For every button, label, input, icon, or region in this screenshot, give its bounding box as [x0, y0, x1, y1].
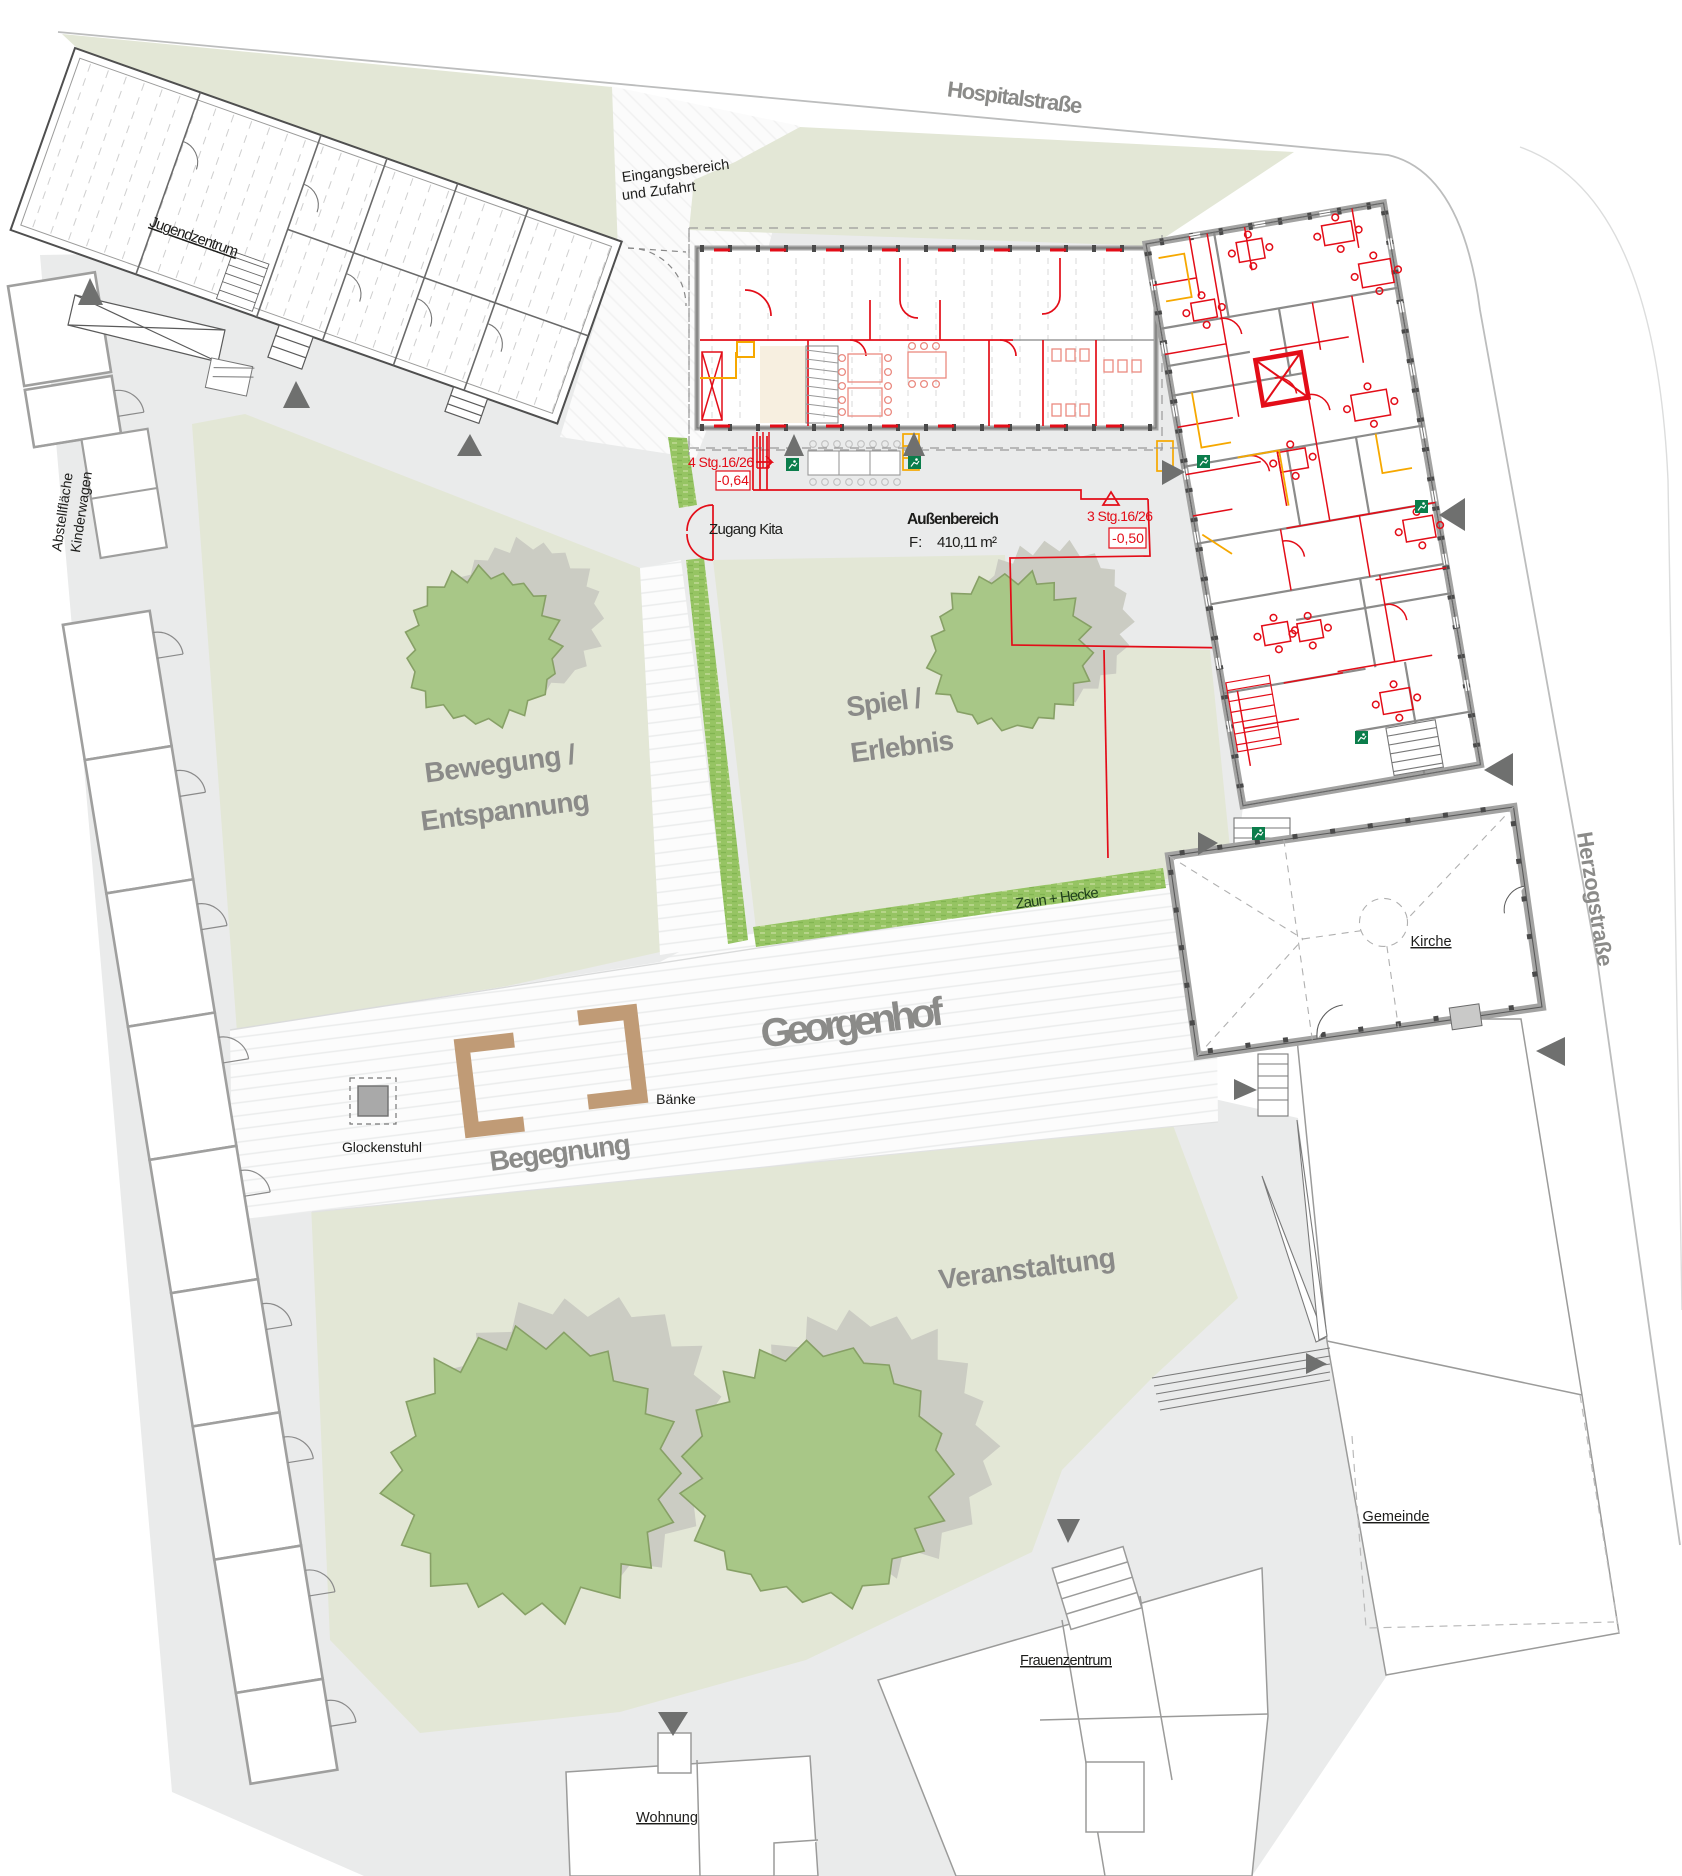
- svg-text:Herzogstraße: Herzogstraße: [1572, 830, 1618, 968]
- svg-text:3 Stg.16/26: 3 Stg.16/26: [1087, 508, 1153, 524]
- svg-text:Kirche: Kirche: [1410, 934, 1451, 950]
- svg-text:410,11 m²: 410,11 m²: [937, 534, 997, 551]
- svg-text:F:: F:: [909, 534, 922, 551]
- svg-text:-0,50: -0,50: [1112, 530, 1144, 546]
- svg-text:Gemeinde: Gemeinde: [1363, 1509, 1430, 1525]
- svg-text:Hospitalstraße: Hospitalstraße: [946, 76, 1084, 118]
- svg-text:Bänke: Bänke: [656, 1091, 696, 1107]
- svg-text:4 Stg.16/26: 4 Stg.16/26: [688, 454, 754, 470]
- svg-text:Frauenzentrum: Frauenzentrum: [1020, 1653, 1112, 1669]
- svg-text:Wohnung: Wohnung: [636, 1810, 698, 1826]
- svg-text:Glockenstuhl: Glockenstuhl: [342, 1139, 422, 1155]
- svg-text:Zugang Kita: Zugang Kita: [709, 521, 784, 538]
- svg-text:Außenbereich: Außenbereich: [907, 511, 999, 528]
- svg-text:-0,64: -0,64: [717, 472, 749, 488]
